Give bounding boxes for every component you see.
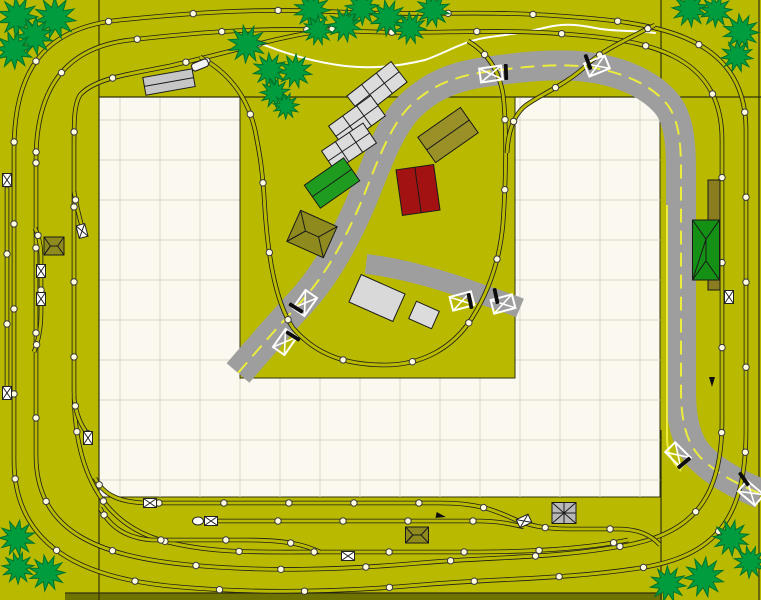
track-joint-dot[interactable] — [260, 180, 266, 186]
track-joint-dot[interactable] — [386, 584, 392, 590]
track-joint-dot[interactable] — [4, 321, 10, 327]
track-joint-dot[interactable] — [105, 18, 111, 24]
uncoupler-marker[interactable] — [37, 293, 46, 306]
track-joint-dot[interactable] — [33, 58, 39, 64]
track-joint-dot[interactable] — [351, 500, 357, 506]
track-joint-dot[interactable] — [33, 330, 39, 336]
track-joint-dot[interactable] — [247, 111, 253, 117]
uncoupler-marker[interactable] — [342, 552, 355, 561]
track-joint-dot[interactable] — [640, 564, 646, 570]
track-joint-dot[interactable] — [101, 512, 107, 518]
track-joint-dot[interactable] — [193, 562, 199, 568]
uncoupler-marker[interactable] — [37, 265, 46, 278]
track-joint-dot[interactable] — [134, 36, 140, 42]
uncoupler-marker[interactable] — [3, 387, 12, 400]
track-joint-dot[interactable] — [11, 306, 17, 312]
building-red-house[interactable] — [396, 165, 440, 216]
track-joint-dot[interactable] — [471, 578, 477, 584]
track-joint-dot[interactable] — [615, 18, 621, 24]
track-joint-dot[interactable] — [286, 500, 292, 506]
track-joint-dot[interactable] — [183, 59, 189, 65]
track-joint-dot[interactable] — [236, 548, 242, 554]
track-joint-dot[interactable] — [278, 566, 284, 572]
track-joint-dot[interactable] — [719, 344, 725, 350]
track-joint-dot[interactable] — [719, 429, 725, 435]
track-joint-dot[interactable] — [288, 540, 294, 546]
track-joint-dot[interactable] — [709, 91, 715, 97]
track-joint-dot[interactable] — [33, 245, 39, 251]
track-joint-dot[interactable] — [743, 279, 749, 285]
track-joint-dot[interactable] — [416, 500, 422, 506]
track-joint-dot[interactable] — [474, 28, 480, 34]
layout-drawing — [0, 0, 761, 600]
track-joint-dot[interactable] — [109, 548, 115, 554]
building-left-pavilion[interactable] — [44, 237, 64, 255]
track-joint-dot[interactable] — [743, 194, 749, 200]
gate-bar-shape — [504, 64, 508, 80]
track-joint-dot[interactable] — [4, 251, 10, 257]
track-joint-dot[interactable] — [33, 415, 39, 421]
track-joint-dot[interactable] — [301, 588, 307, 594]
track-joint-dot[interactable] — [33, 342, 39, 348]
track-joint-dot[interactable] — [481, 51, 487, 57]
track-joint-dot[interactable] — [71, 204, 77, 210]
track-joint-dot[interactable] — [510, 118, 516, 124]
track-joint-dot[interactable] — [645, 25, 651, 31]
track-joint-dot[interactable] — [696, 41, 702, 47]
track-plan-canvas[interactable] — [0, 0, 761, 600]
track-joint-dot[interactable] — [693, 509, 699, 515]
track-joint-dot[interactable] — [71, 354, 77, 360]
track-joint-dot[interactable] — [132, 578, 138, 584]
track-joint-dot[interactable] — [409, 359, 415, 365]
track-joint-dot[interactable] — [190, 10, 196, 16]
track-joint-dot[interactable] — [266, 249, 272, 255]
track-joint-dot[interactable] — [219, 28, 225, 34]
track-joint-dot[interactable] — [386, 549, 392, 555]
track-joint-dot[interactable] — [461, 549, 467, 555]
uncoupler-marker[interactable] — [84, 432, 93, 445]
track-joint-dot[interactable] — [530, 11, 536, 17]
building-turntable[interactable] — [552, 503, 576, 524]
track-bumper[interactable] — [193, 517, 204, 525]
track-joint-dot[interactable] — [43, 498, 49, 504]
track-joint-dot[interactable] — [109, 75, 115, 81]
track-joint-dot[interactable] — [466, 320, 472, 326]
track-joint-dot[interactable] — [71, 129, 77, 135]
track-joint-dot[interactable] — [96, 482, 102, 488]
track-joint-dot[interactable] — [742, 449, 748, 455]
track-joint-dot[interactable] — [12, 476, 18, 482]
track-joint-dot[interactable] — [71, 279, 77, 285]
track-joint-dot[interactable] — [405, 518, 411, 524]
track-joint-dot[interactable] — [542, 524, 548, 530]
track-joint-dot[interactable] — [221, 500, 227, 506]
track-joint-dot[interactable] — [72, 197, 78, 203]
track-joint-dot[interactable] — [470, 518, 476, 524]
track-joint-dot[interactable] — [552, 84, 558, 90]
track-joint-dot[interactable] — [559, 31, 565, 37]
track-joint-dot[interactable] — [743, 364, 749, 370]
track-joint-dot[interactable] — [275, 7, 281, 13]
track-joint-dot[interactable] — [643, 43, 649, 49]
track-joint-dot[interactable] — [742, 109, 748, 115]
track-joint-dot[interactable] — [285, 317, 291, 323]
building-yard-shed[interactable] — [406, 527, 429, 543]
track-joint-dot[interactable] — [53, 547, 59, 553]
track-joint-dot[interactable] — [536, 547, 542, 553]
track-joint-dot[interactable] — [447, 558, 453, 564]
track-joint-dot[interactable] — [33, 160, 39, 166]
uncoupler-marker[interactable] — [725, 291, 734, 304]
track-joint-dot[interactable] — [223, 537, 229, 543]
building-green-station[interactable] — [693, 220, 720, 280]
track-joint-dot[interactable] — [216, 587, 222, 593]
uncoupler-marker[interactable] — [144, 499, 157, 508]
track-joint-dot[interactable] — [11, 221, 17, 227]
crossing-gate-bar[interactable] — [504, 64, 508, 80]
track-joint-dot[interactable] — [340, 518, 346, 524]
track-joint-dot[interactable] — [363, 564, 369, 570]
track-joint-dot[interactable] — [72, 403, 78, 409]
track-joint-dot[interactable] — [556, 573, 562, 579]
track-joint-dot[interactable] — [502, 117, 508, 123]
track-joint-dot[interactable] — [275, 518, 281, 524]
track-joint-dot[interactable] — [311, 549, 317, 555]
track-joint-dot[interactable] — [35, 232, 41, 238]
track-joint-dot[interactable] — [480, 504, 486, 510]
uncoupler-marker[interactable] — [205, 517, 218, 526]
baseboard-edge-strip — [65, 593, 662, 600]
track-joint-dot[interactable] — [607, 526, 613, 532]
track-joint-dot[interactable] — [494, 256, 500, 262]
track-joint-dot[interactable] — [158, 537, 164, 543]
track-joint-dot[interactable] — [11, 139, 17, 145]
uncoupler-marker[interactable] — [3, 174, 12, 187]
track-joint-dot[interactable] — [340, 357, 346, 363]
track-joint-dot[interactable] — [33, 149, 39, 155]
track-joint-dot[interactable] — [617, 543, 623, 549]
track-joint-dot[interactable] — [74, 429, 80, 435]
track-joint-dot[interactable] — [502, 187, 508, 193]
track-joint-dot[interactable] — [610, 540, 616, 546]
track-joint-dot[interactable] — [58, 69, 64, 75]
track-joint-dot[interactable] — [100, 498, 106, 504]
